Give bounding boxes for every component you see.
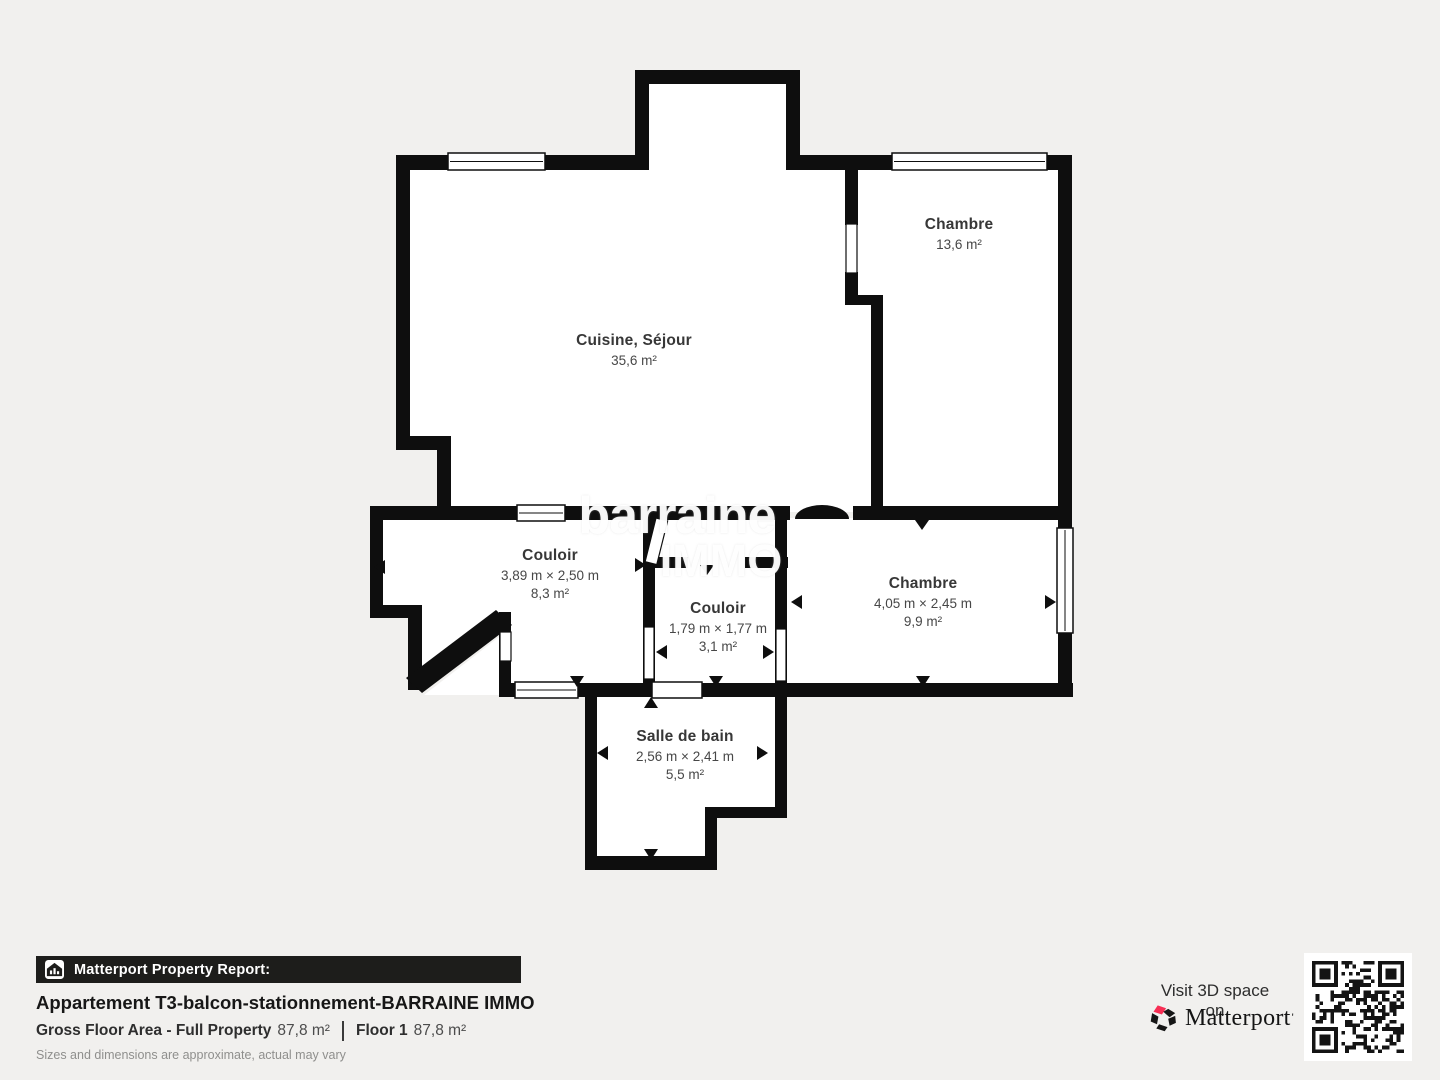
gross-floor-area-label: Gross Floor Area - Full Property bbox=[36, 1022, 271, 1040]
divider bbox=[342, 1021, 344, 1041]
report-bar-label: Matterport Property Report: bbox=[74, 962, 270, 978]
report-header-bar: Matterport Property Report: bbox=[36, 956, 521, 983]
matterport-floorplan-page: Cuisine, Séjour 35,6 m² Chambre 13,6 m² … bbox=[0, 0, 1440, 1080]
door bbox=[776, 629, 786, 681]
opening bbox=[652, 682, 702, 698]
property-title: Appartement T3-balcon-stationnement-BARR… bbox=[36, 992, 535, 1014]
trademark-mark: ' bbox=[1292, 1013, 1294, 1023]
floor-label: Floor 1 bbox=[356, 1022, 408, 1040]
gross-floor-area-value: 87,8 m² bbox=[277, 1022, 330, 1040]
area-summary: Gross Floor Area - Full Property 87,8 m²… bbox=[36, 1021, 466, 1041]
entry-door bbox=[500, 632, 511, 661]
matterport-logo-icon bbox=[1150, 1004, 1178, 1032]
door bbox=[644, 627, 654, 679]
matterport-wordmark: Matterport bbox=[1185, 1005, 1291, 1032]
matterport-link[interactable]: Matterport' bbox=[1150, 1004, 1294, 1032]
qr-code[interactable] bbox=[1304, 953, 1412, 1061]
floor-areas bbox=[383, 78, 1060, 858]
house-report-icon bbox=[45, 960, 64, 979]
floor-plan bbox=[0, 0, 1440, 1080]
disclaimer-text: Sizes and dimensions are approximate, ac… bbox=[36, 1048, 346, 1062]
floor-area-value: 87,8 m² bbox=[414, 1022, 467, 1040]
door bbox=[846, 224, 857, 273]
